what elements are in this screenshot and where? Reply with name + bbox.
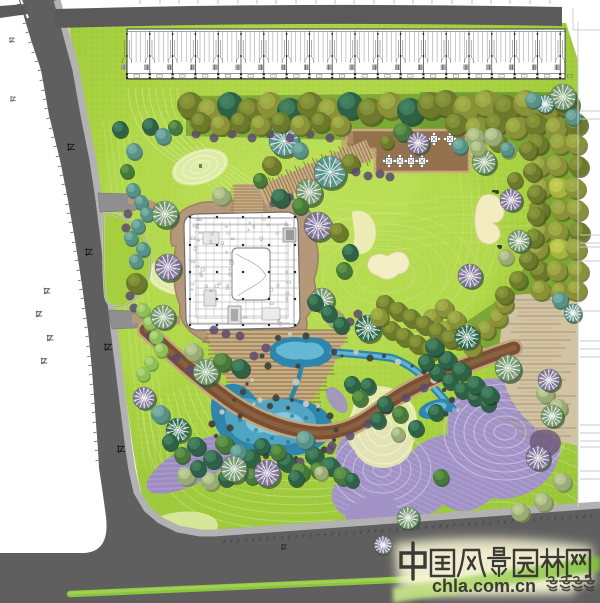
svg-text:chla.com.cn: chla.com.cn (432, 576, 536, 596)
